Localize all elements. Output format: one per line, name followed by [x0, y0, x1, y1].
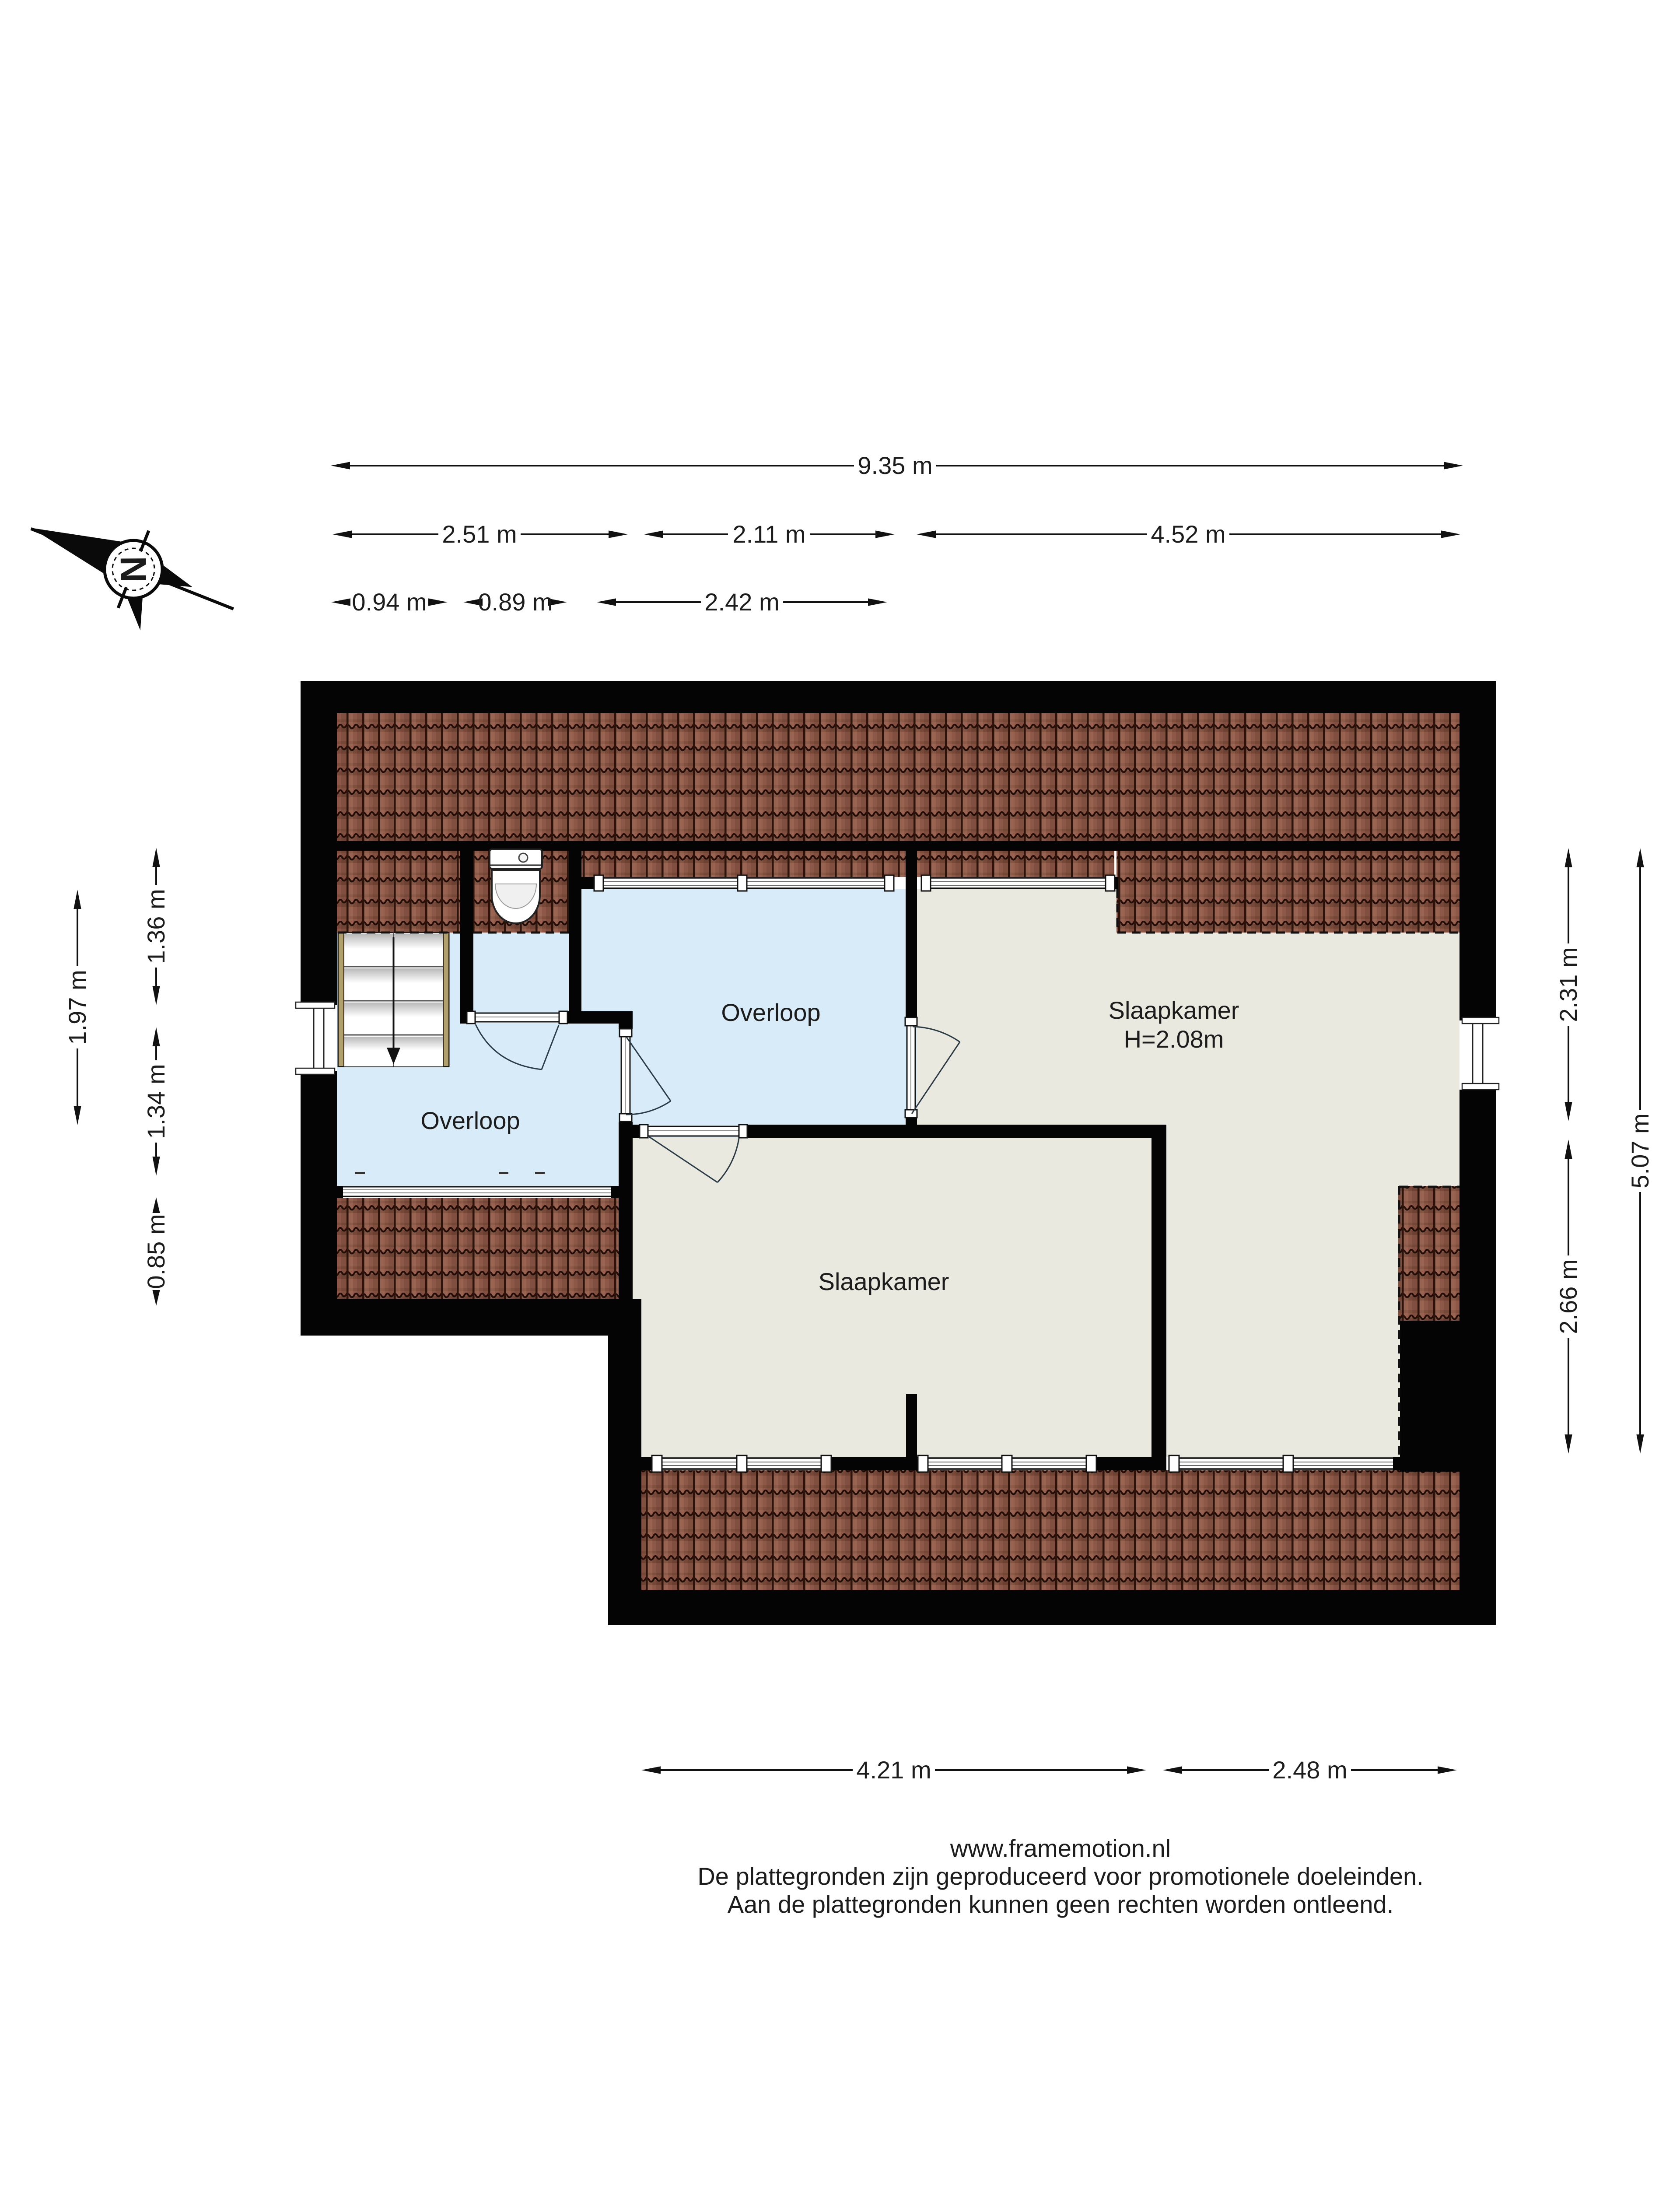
svg-text:5.07 m: 5.07 m	[1626, 1113, 1654, 1188]
svg-text:1.34 m: 1.34 m	[142, 1064, 170, 1139]
svg-text:www.framemotion.nl: www.framemotion.nl	[950, 1834, 1171, 1862]
svg-text:2.51 m: 2.51 m	[442, 520, 517, 548]
svg-text:2.48 m: 2.48 m	[1272, 1756, 1347, 1784]
svg-text:4.52 m: 4.52 m	[1151, 520, 1225, 548]
svg-text:Aan de plattegronden kunnen ge: Aan de plattegronden kunnen geen rechten…	[728, 1890, 1394, 1918]
svg-text:Slaapkamer: Slaapkamer	[819, 1268, 949, 1295]
svg-text:0.89 m: 0.89 m	[478, 588, 553, 616]
svg-text:N: N	[113, 556, 154, 582]
svg-text:2.31 m: 2.31 m	[1554, 947, 1582, 1022]
svg-text:2.66 m: 2.66 m	[1554, 1259, 1582, 1334]
svg-text:1.36 m: 1.36 m	[142, 889, 170, 964]
svg-text:2.42 m: 2.42 m	[704, 588, 779, 616]
svg-text:9.35 m: 9.35 m	[857, 452, 932, 479]
svg-text:0.94 m: 0.94 m	[352, 588, 427, 616]
svg-text:H=2.08m: H=2.08m	[1124, 1025, 1224, 1053]
svg-text:2.11 m: 2.11 m	[732, 520, 805, 548]
svg-text:4.21 m: 4.21 m	[856, 1756, 931, 1784]
svg-text:De plattegronden zijn geproduc: De plattegronden zijn geproduceerd voor …	[697, 1862, 1423, 1890]
svg-text:Overloop: Overloop	[721, 999, 820, 1026]
svg-text:1.97 m: 1.97 m	[63, 970, 91, 1045]
svg-text:Overloop: Overloop	[420, 1107, 520, 1134]
svg-text:0.85 m: 0.85 m	[142, 1214, 170, 1289]
svg-text:Slaapkamer: Slaapkamer	[1109, 996, 1239, 1024]
